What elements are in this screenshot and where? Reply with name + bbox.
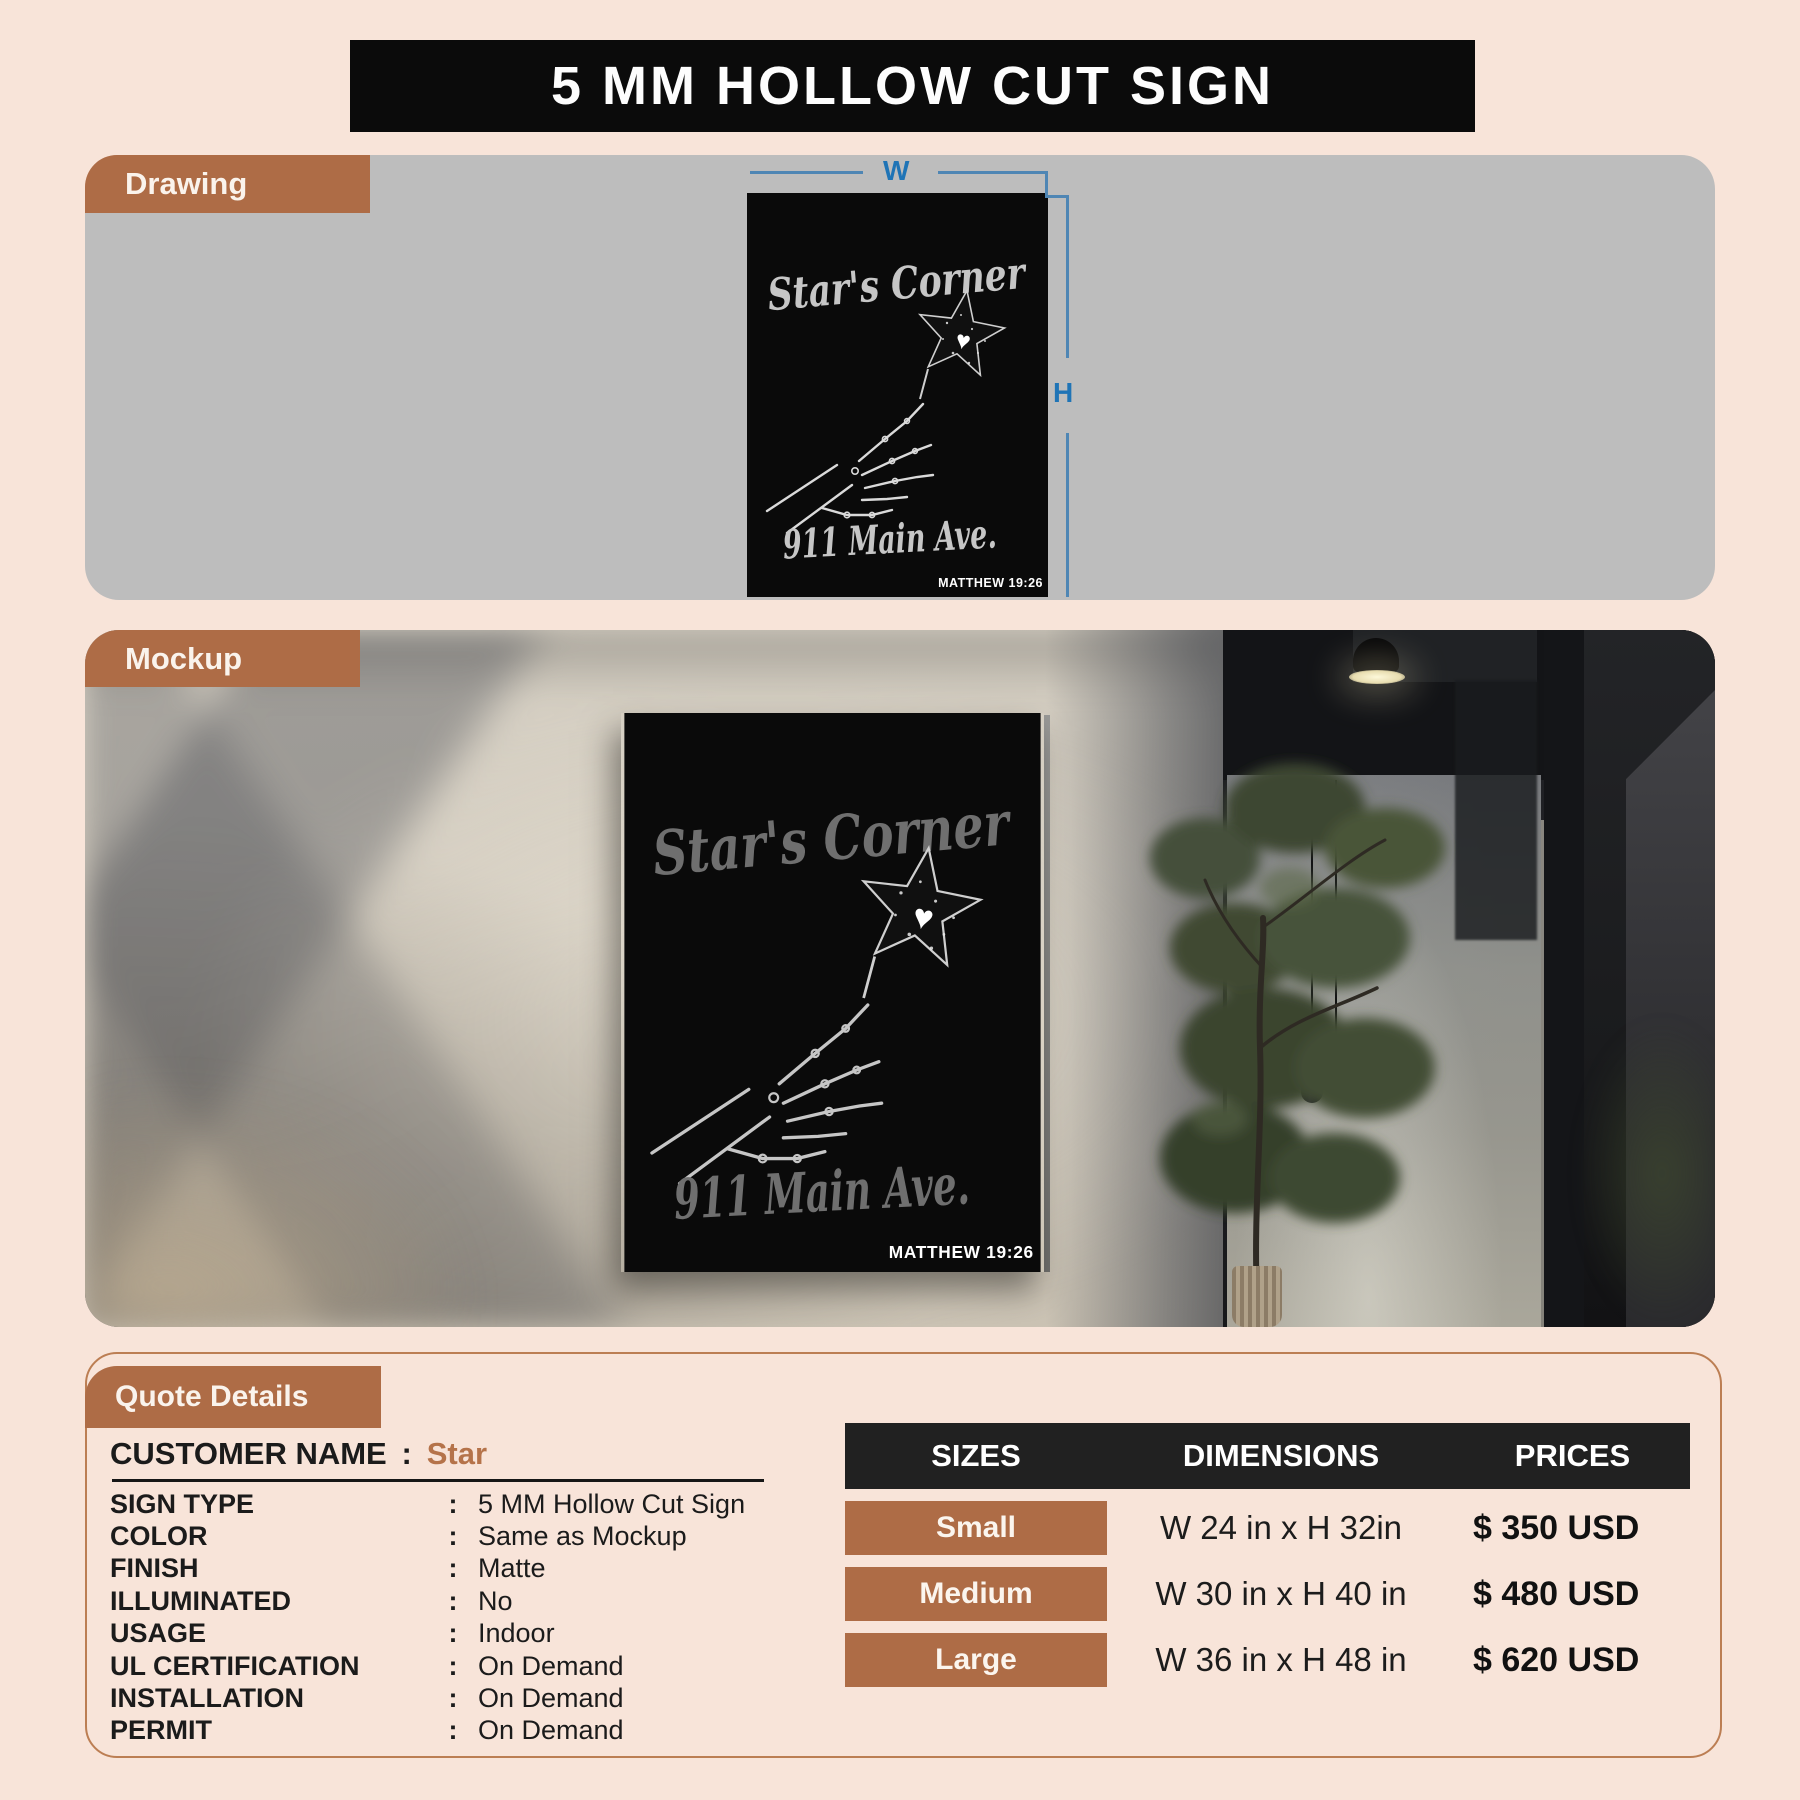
quote-fields: CUSTOMER NAME : Star SIGN TYPE : 5 MM Ho… <box>110 1434 780 1747</box>
pricing-header-row: SIZES DIMENSIONS PRICES <box>845 1423 1690 1489</box>
width-dimension-label: W <box>883 155 909 187</box>
customer-name-row: CUSTOMER NAME : Star <box>110 1434 780 1474</box>
sign-side-edge <box>1044 715 1050 1272</box>
height-dimension-label: H <box>1053 377 1073 409</box>
quote-value: On Demand <box>478 1683 624 1714</box>
colon: : <box>440 1586 466 1617</box>
title-banner: 5 MM HOLLOW CUT SIGN <box>350 40 1475 132</box>
customer-name-value: Star <box>427 1436 487 1472</box>
pricing-row-large: Large W 36 in x H 48 in $ 620 USD <box>845 1633 1690 1687</box>
colon: : <box>440 1683 466 1714</box>
page-title: 5 MM HOLLOW CUT SIGN <box>551 55 1274 117</box>
quote-row-permit: PERMIT : On Demand <box>110 1715 780 1747</box>
quote-value: 5 MM Hollow Cut Sign <box>478 1489 745 1520</box>
quote-value: Matte <box>478 1553 546 1584</box>
pricing-row-medium: Medium W 30 in x H 40 in $ 480 USD <box>845 1567 1690 1621</box>
dimensions-header: DIMENSIONS <box>1107 1438 1455 1474</box>
quote-row-sign-type: SIGN TYPE : 5 MM Hollow Cut Sign <box>110 1488 780 1520</box>
colon: : <box>440 1521 466 1552</box>
price-value: $ 620 USD <box>1455 1641 1690 1680</box>
sign-mockup <box>621 713 1044 1272</box>
colon: : <box>440 1651 466 1682</box>
width-dimension-line <box>938 171 1048 174</box>
quote-value: Indoor <box>478 1618 555 1649</box>
colon: : <box>387 1436 427 1472</box>
quote-label: UL CERTIFICATION <box>110 1651 440 1682</box>
size-button-large[interactable]: Large <box>845 1633 1107 1687</box>
quote-label: USAGE <box>110 1618 440 1649</box>
colon: : <box>440 1618 466 1649</box>
dimension-value: W 30 in x H 40 in <box>1107 1575 1455 1613</box>
height-dimension-line <box>1066 195 1069 358</box>
quote-label: PERMIT <box>110 1715 440 1746</box>
dimension-connector <box>1045 171 1048 198</box>
quote-label: COLOR <box>110 1521 440 1552</box>
size-button-small[interactable]: Small <box>845 1501 1107 1555</box>
drawing-panel: Drawing W H <box>85 155 1715 600</box>
price-value: $ 480 USD <box>1455 1575 1690 1614</box>
quote-row-finish: FINISH : Matte <box>110 1553 780 1585</box>
quote-label: INSTALLATION <box>110 1683 440 1714</box>
quote-label: FINISH <box>110 1553 440 1584</box>
quote-row-ul-certification: UL CERTIFICATION : On Demand <box>110 1650 780 1682</box>
quote-row-installation: INSTALLATION : On Demand <box>110 1682 780 1714</box>
colon: : <box>440 1553 466 1584</box>
price-value: $ 350 USD <box>1455 1509 1690 1548</box>
colon: : <box>440 1715 466 1746</box>
height-dimension-line <box>1066 433 1069 597</box>
customer-name-label: CUSTOMER NAME <box>110 1436 387 1472</box>
pricing-row-small: Small W 24 in x H 32in $ 350 USD <box>845 1501 1690 1555</box>
dimension-value: W 36 in x H 48 in <box>1107 1641 1455 1679</box>
quote-row-illuminated: ILLUMINATED : No <box>110 1585 780 1617</box>
colon: : <box>440 1489 466 1520</box>
quote-row-color: COLOR : Same as Mockup <box>110 1520 780 1552</box>
quote-value: On Demand <box>478 1715 624 1746</box>
mockup-section-tab: Mockup <box>85 630 360 687</box>
width-dimension-line <box>750 171 863 174</box>
sizes-header: SIZES <box>845 1438 1107 1474</box>
divider-line <box>112 1479 764 1482</box>
quote-label: SIGN TYPE <box>110 1489 440 1520</box>
olive-tree <box>1085 688 1555 1327</box>
plant-pot <box>1232 1266 1282 1327</box>
quote-section-tab: Quote Details <box>85 1366 381 1428</box>
size-button-medium[interactable]: Medium <box>845 1567 1107 1621</box>
dimension-value: W 24 in x H 32in <box>1107 1509 1455 1547</box>
sign-drawing <box>747 193 1048 597</box>
quote-value: No <box>478 1586 513 1617</box>
quote-value: Same as Mockup <box>478 1521 687 1552</box>
quote-row-usage: USAGE : Indoor <box>110 1618 780 1650</box>
prices-header: PRICES <box>1455 1438 1690 1474</box>
drawing-section-tab: Drawing <box>85 155 370 213</box>
mockup-panel: Mockup <box>85 630 1715 1327</box>
pricing-table: SIZES DIMENSIONS PRICES Small W 24 in x … <box>845 1423 1690 1687</box>
quote-value: On Demand <box>478 1651 624 1682</box>
quote-label: ILLUMINATED <box>110 1586 440 1617</box>
page: Star's Corner ♥ <box>0 0 1800 1800</box>
